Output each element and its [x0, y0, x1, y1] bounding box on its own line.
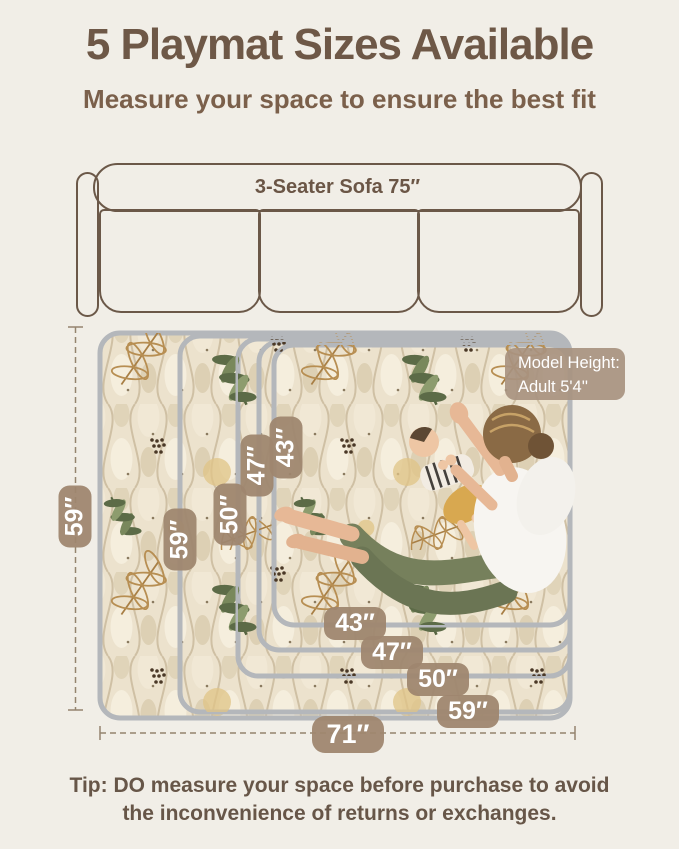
sofa-size-label: 3-Seater Sofa 75″	[255, 176, 420, 199]
mat-height-badge: 43″	[270, 417, 303, 479]
page-subtitle: Measure your space to ensure the best fi…	[0, 84, 679, 115]
playmat-sizes-infographic: 5 Playmat Sizes Available Measure your s…	[0, 0, 679, 849]
sofa-seat-cushion	[258, 209, 420, 313]
page-title: 5 Playmat Sizes Available	[0, 20, 679, 70]
model-height-line1: Model Height:	[518, 352, 625, 376]
sofa-armrest-right	[580, 172, 603, 317]
mat-width-badge: 50″	[407, 663, 469, 696]
model-height-line2: Adult 5'4''	[518, 376, 625, 400]
total-height-badge: 59″	[59, 486, 92, 548]
mat-width-badge: 59″	[437, 695, 499, 728]
sofa-armrest-left	[76, 172, 99, 317]
total-width-badge: 71″	[312, 716, 384, 753]
model-height-badge: Model Height: Adult 5'4''	[505, 348, 625, 400]
sofa-seat-cushion	[417, 209, 580, 313]
mat-height-badge: 50″	[214, 484, 247, 546]
tip-line1: Tip: DO measure your space before purcha…	[0, 772, 679, 800]
tip-line2: the inconvenience of returns or exchange…	[0, 800, 679, 828]
sofa-seat-cushion	[99, 209, 261, 313]
sofa-backrest: 3-Seater Sofa 75″	[93, 163, 582, 212]
tip-text: Tip: DO measure your space before purcha…	[0, 772, 679, 828]
mat-height-badge: 59″	[164, 509, 197, 571]
